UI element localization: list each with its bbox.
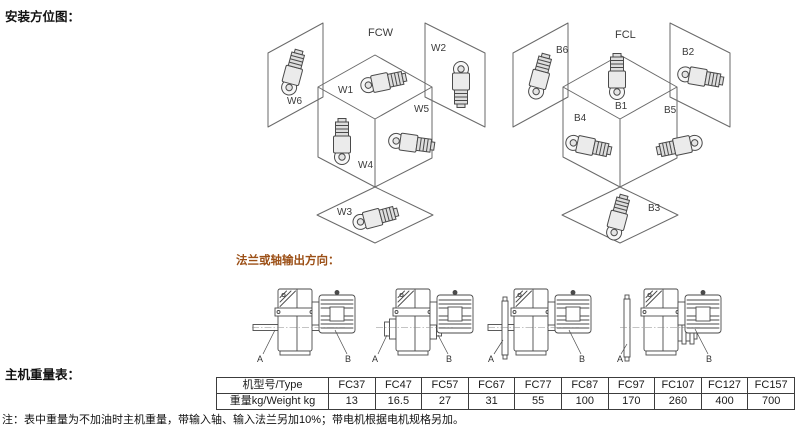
callout-a: A [257,354,263,364]
label-b3: B3 [648,203,660,214]
model-cell: FC97 [608,378,655,394]
gearmotor-b2-icon [676,65,724,90]
label-b6: B6 [556,45,568,56]
fcw-title: FCW [368,27,393,39]
gearmotor-b6-icon [526,52,554,101]
output-drawing-flange-shaft: A B [486,271,601,366]
gearmotor-w5-icon [388,131,436,154]
fcl-title: FCL [615,29,636,41]
label-b4: B4 [574,113,586,124]
output-drawing-flange-hub: A B [616,271,731,366]
label-b1: B1 [615,101,627,112]
gearmotor-side-view [511,289,591,355]
callout-a: A [372,354,378,364]
weight-header-cell: 重量kg/Weight kg [217,394,329,410]
mount-diagram-fcl: FCL B1 B2 B3 B4 B5 B6 [507,22,737,250]
fcl-line-art [507,22,737,250]
fcw-line-art [262,22,492,250]
weight-cell: 13 [329,394,376,410]
label-w2: W2 [431,43,446,54]
weight-cell: 260 [655,394,702,410]
weight-cell: 27 [422,394,469,410]
gearmotor-w3-icon [351,204,400,232]
callout-b: B [706,354,712,364]
weight-table: 机型号/Type FC37 FC47 FC57 FC67 FC77 FC87 F… [216,377,795,410]
model-cell: FC107 [655,378,702,394]
label-w3: W3 [337,207,352,218]
gearmotor-side-view [641,289,721,355]
gearmotor-b5-icon [655,133,704,159]
gearmotor-w1-icon [359,69,408,95]
weight-cell: 31 [468,394,515,410]
model-cell: FC127 [701,378,748,394]
output-drawing-hollow-shaft: A B [368,271,483,366]
callout-b: B [579,354,585,364]
gearmotor-b1-icon [609,54,626,100]
weight-cell: 16.5 [375,394,422,410]
weight-cell: 55 [515,394,562,410]
installation-heading: 安装方位图： [5,6,80,25]
label-b2: B2 [682,47,694,58]
callout-a: A [488,354,494,364]
weight-table-heading: 主机重量表： [5,364,80,383]
gearmotor-w2-icon [453,62,470,108]
gearmotor-b4-icon [564,133,613,159]
label-w5: W5 [414,104,429,115]
model-cell: FC57 [422,378,469,394]
gearmotor-side-view [275,289,355,355]
label-b5: B5 [664,105,676,116]
output-drawing-double-shaft: A B [250,271,365,366]
weight-cell: 400 [701,394,748,410]
weight-cell: 700 [748,394,795,410]
callout-b: B [446,354,452,364]
gearmotor-w6-icon [279,48,307,97]
model-cell: FC47 [375,378,422,394]
model-cell: FC87 [561,378,608,394]
callout-b: B [345,354,351,364]
type-header-cell: 机型号/Type [217,378,329,394]
label-w1: W1 [338,85,353,96]
mount-diagram-fcw: FCW W1 W2 W3 W4 W5 W6 [262,22,492,250]
flange-output-heading: 法兰或轴输出方向： [236,252,340,268]
weight-cell: 100 [561,394,608,410]
callout-a: A [617,354,623,364]
weight-table-header-row: 机型号/Type FC37 FC47 FC57 FC67 FC77 FC87 F… [217,378,795,394]
weight-table-data-row: 重量kg/Weight kg 13 16.5 27 31 55 100 170 … [217,394,795,410]
model-cell: FC67 [468,378,515,394]
model-cell: FC77 [515,378,562,394]
label-w6: W6 [287,96,302,107]
catalog-page: { "colors": { "accent": "#9c5017", "line… [0,0,800,432]
gearmotor-b3-icon [604,193,632,242]
gearmotor-w4-icon [334,119,351,165]
weight-cell: 170 [608,394,655,410]
label-w4: W4 [358,160,373,171]
footnote: 注：表中重量为不加油时主机重量，带输入轴、输入法兰另加10%；带电机根据电机规格… [2,411,464,427]
model-cell: FC37 [329,378,376,394]
model-cell: FC157 [748,378,795,394]
gearmotor-side-view [393,289,473,355]
